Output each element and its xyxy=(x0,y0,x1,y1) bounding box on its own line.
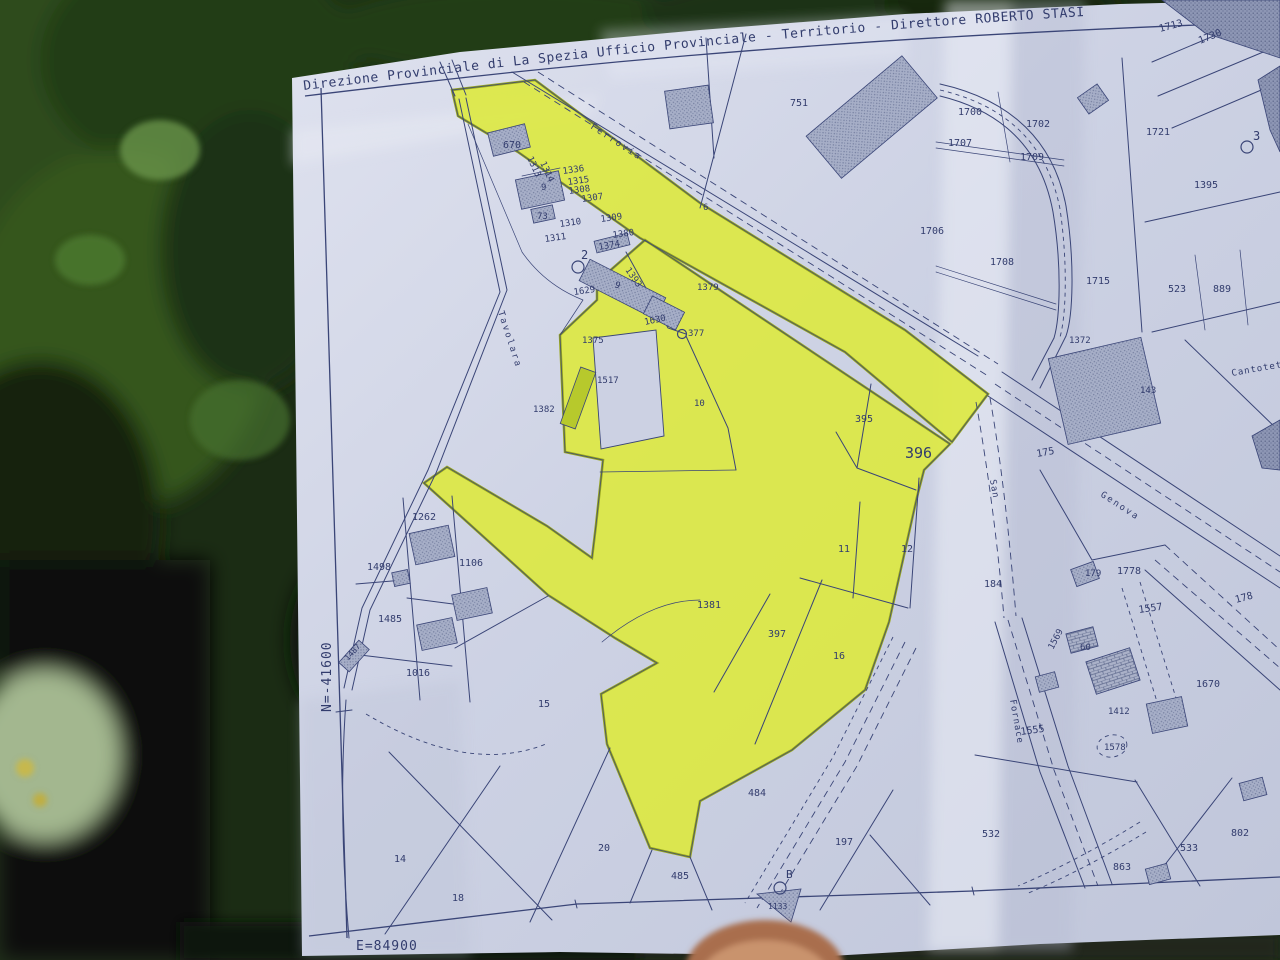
parcel-label: 1706 xyxy=(920,226,944,237)
parcel-label: 1382 xyxy=(533,405,555,415)
parcel-label: 395 xyxy=(855,414,873,425)
parcel-label: 532 xyxy=(982,829,1000,840)
parcel-label: 533 xyxy=(1180,843,1198,854)
parcel-label: 10 xyxy=(694,399,705,409)
parcel-label: 1379 xyxy=(697,283,719,293)
parcel-label: 1106 xyxy=(459,558,483,569)
parcel-label: 1670 xyxy=(1196,679,1220,690)
parcel-label: 863 xyxy=(1113,862,1131,873)
parcel-label: 1700 xyxy=(958,107,982,118)
parcel-label: 15 xyxy=(538,699,550,710)
east-coordinate-label: E=84900 xyxy=(356,939,418,954)
parcel-label: 11 xyxy=(838,544,850,555)
parcel-label: 20 xyxy=(598,843,610,854)
parcel-label: 670 xyxy=(503,140,521,151)
parcel-label: 396 xyxy=(905,444,932,462)
parcel-label: 1262 xyxy=(412,512,436,523)
parcel-label: 12 xyxy=(901,544,913,555)
parcel-label: 1708 xyxy=(990,257,1014,268)
parcel-label: 1702 xyxy=(1026,119,1050,130)
parcel-label: 16 xyxy=(833,651,845,662)
parcel-label: 3 xyxy=(1253,129,1260,143)
parcel-label: 1709 xyxy=(1020,152,1044,163)
parcel-label: 1395 xyxy=(1194,180,1218,191)
parcel-label: 1778 xyxy=(1117,566,1141,577)
parcel-label: 1133 xyxy=(768,902,787,911)
parcel-label: 60 xyxy=(1080,643,1091,653)
parcel-label: 1707 xyxy=(948,138,972,149)
parcel-label: 1372 xyxy=(1069,336,1091,346)
parcel-label: 1381 xyxy=(697,600,721,611)
parcel-label: 184 xyxy=(984,579,1002,590)
parcel-label: 1517 xyxy=(597,376,619,386)
parcel-label: 889 xyxy=(1213,284,1231,295)
parcel-label: 1485 xyxy=(378,614,402,625)
parcel-label: 1016 xyxy=(406,668,430,679)
parcel-1517-cutout xyxy=(593,330,664,449)
parcel-label: 485 xyxy=(671,871,689,882)
parcel-label: 1721 xyxy=(1146,127,1170,138)
parcel-label: 802 xyxy=(1231,828,1249,839)
parcel-label: 751 xyxy=(790,98,808,109)
parcel-label: 397 xyxy=(768,629,786,640)
parcel-label: B xyxy=(786,868,793,881)
photo-of-cadastral-map: Direzione Provinciale di La Spezia Uffic… xyxy=(0,0,1280,960)
parcel-label: 73 xyxy=(537,212,548,222)
parcel-label: 179 xyxy=(1085,569,1101,579)
parcel-label: 2 xyxy=(581,248,588,262)
parcel-label: 377 xyxy=(688,329,704,339)
north-coordinate-label: N=-41600 xyxy=(320,641,335,712)
parcel-label: 9 xyxy=(541,183,546,193)
parcel-label: 523 xyxy=(1168,284,1186,295)
parcel-label: 1578 xyxy=(1104,743,1126,753)
map-photo-svg: Direzione Provinciale di La Spezia Uffic… xyxy=(0,0,1280,960)
parcel-label: 6 xyxy=(703,203,708,213)
parcel-label: 1715 xyxy=(1086,276,1110,287)
parcel-label: 14 xyxy=(394,854,406,865)
parcel-label: 197 xyxy=(835,837,853,848)
parcel-label: 1375 xyxy=(582,336,604,346)
parcel-label: 1412 xyxy=(1108,707,1130,717)
parcel-label: 18 xyxy=(452,893,464,904)
parcel-label: 484 xyxy=(748,788,766,799)
parcel-label: 1498 xyxy=(367,562,391,573)
parcel-label: 143 xyxy=(1140,386,1156,396)
